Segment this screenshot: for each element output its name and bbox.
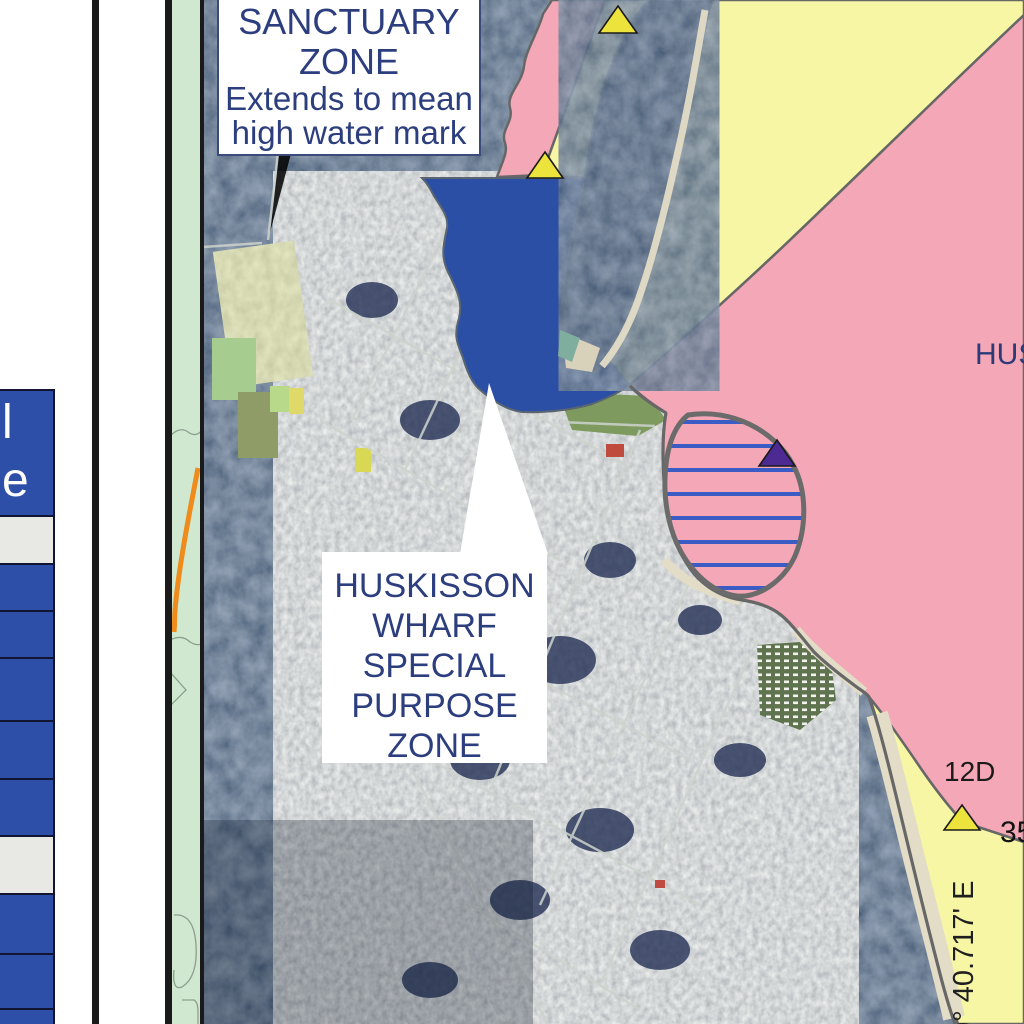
callout-line: ZONE <box>322 726 547 766</box>
legend-partial-text: l e <box>2 394 29 510</box>
legend-swatch-blue <box>0 610 53 657</box>
legend-swatch-blue <box>0 1008 53 1024</box>
legend-swatch-blue <box>0 893 53 953</box>
latitude-label-partial: 35 <box>1000 816 1024 850</box>
callout-line: Extends to mean <box>219 82 479 116</box>
callout-line: WHARF <box>322 606 547 646</box>
map-neatline <box>200 0 204 1024</box>
legend-swatch-blue <box>0 778 53 835</box>
legend-swatch-blue <box>0 953 53 1008</box>
legend-swatch-blue <box>0 563 53 610</box>
legend-partial-line: e <box>2 452 29 510</box>
map-viewer: l e SANCTUARY ZONE Extends to mean high … <box>0 0 1024 1024</box>
callout-line: SANCTUARY <box>219 2 479 42</box>
map-neatline <box>92 0 99 1024</box>
callout-line: high water mark <box>219 116 479 150</box>
wharf-zone-callout: HUSKISSON WHARF SPECIAL PURPOSE ZONE <box>322 552 547 763</box>
callout-line: ZONE <box>219 42 479 82</box>
legend-swatch-blue <box>0 657 53 720</box>
orange-road <box>174 468 198 632</box>
map-neatline <box>165 0 172 1024</box>
callout-line: SPECIAL <box>322 646 547 686</box>
legend-swatch-gray <box>0 515 53 563</box>
callout-line: PURPOSE <box>322 686 547 726</box>
zone-ref-label: 12D <box>944 756 995 788</box>
longitude-label: 0° 40.717' E <box>948 881 981 1024</box>
legend-partial-line: l <box>2 394 29 452</box>
callout-line: HUSKISSON <box>322 566 547 606</box>
legend-swatch-gray <box>0 835 53 893</box>
place-label-partial: HUS <box>975 338 1024 372</box>
sanctuary-zone-callout: SANCTUARY ZONE Extends to mean high wate… <box>217 0 481 156</box>
topo-margin-strip <box>172 0 200 1024</box>
legend-swatch-blue <box>0 720 53 778</box>
